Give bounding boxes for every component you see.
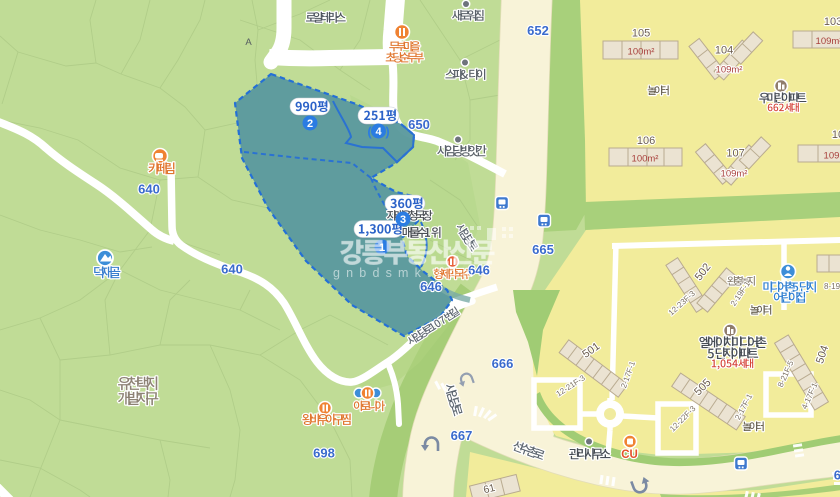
svg-text:69: 69	[834, 468, 840, 483]
svg-text:100m²: 100m²	[632, 154, 659, 165]
svg-text:105: 105	[632, 28, 650, 40]
svg-text:104: 104	[715, 45, 733, 57]
svg-text:3: 3	[400, 214, 406, 226]
svg-text:640: 640	[138, 182, 160, 197]
svg-text:650: 650	[408, 117, 430, 132]
svg-text:107: 107	[726, 148, 744, 160]
svg-text:gnbdsmk.com: gnbdsmk.com	[333, 266, 479, 280]
svg-text:100m²: 100m²	[628, 47, 655, 58]
svg-text:109m²: 109m²	[816, 36, 840, 47]
svg-text:(: (	[367, 124, 372, 139]
svg-text:698: 698	[313, 446, 335, 461]
svg-text:): )	[385, 124, 389, 139]
svg-text:105: 105	[832, 129, 840, 141]
svg-text:640: 640	[221, 262, 243, 277]
svg-text:646: 646	[420, 279, 442, 294]
svg-text:4: 4	[375, 126, 382, 138]
svg-text:8-19: 8-19	[824, 282, 840, 291]
svg-text:109m²: 109m²	[716, 65, 743, 76]
svg-text:109m²: 109m²	[721, 169, 748, 180]
svg-text:666: 666	[492, 356, 514, 371]
svg-text:652: 652	[527, 23, 549, 38]
svg-text:106: 106	[637, 135, 655, 147]
svg-text:103: 103	[824, 16, 840, 28]
svg-text:109m²: 109m²	[824, 151, 840, 162]
svg-text:A: A	[245, 37, 252, 48]
svg-text:667: 667	[451, 428, 473, 443]
svg-text:665: 665	[532, 242, 554, 257]
svg-text:2: 2	[307, 118, 313, 130]
svg-text:CU: CU	[621, 449, 638, 461]
